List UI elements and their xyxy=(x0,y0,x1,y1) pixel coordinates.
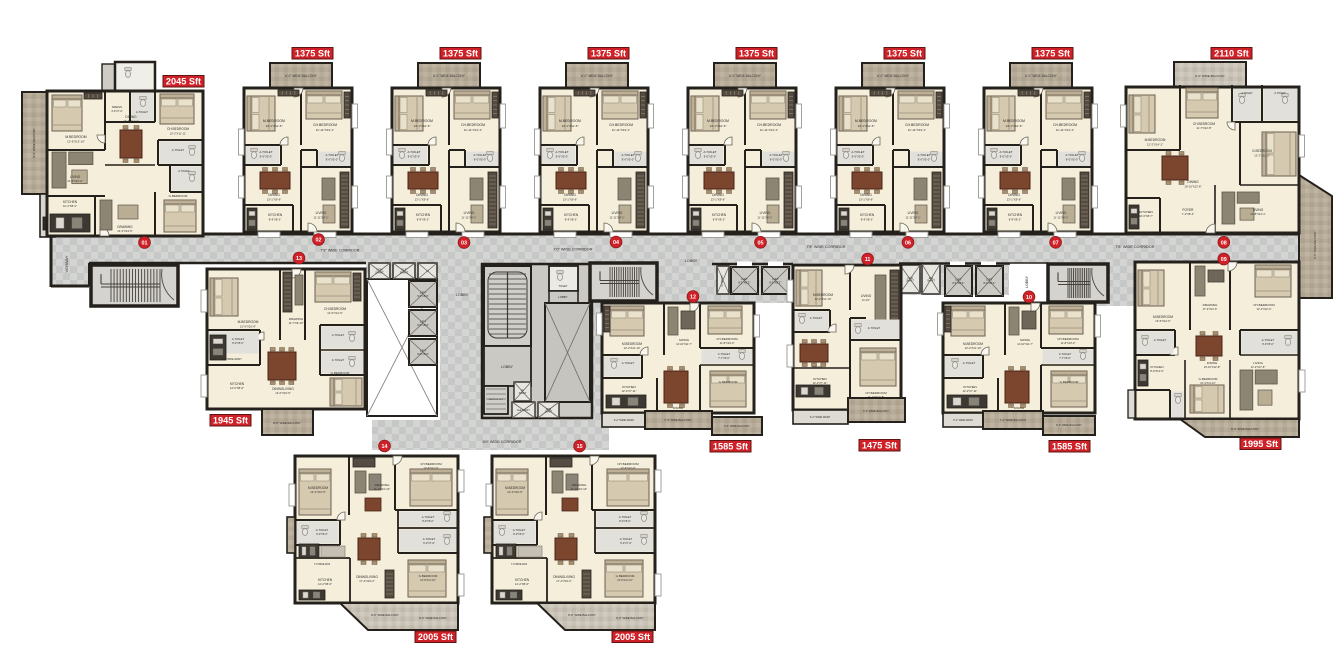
svg-text:7'-0"WIDE WAS: 7'-0"WIDE WAS xyxy=(314,563,331,566)
svg-text:8'-9"X8'-2": 8'-9"X8'-2" xyxy=(565,218,578,222)
svg-text:C.TOILET: C.TOILET xyxy=(718,352,731,356)
svg-text:KITCHEN: KITCHEN xyxy=(230,382,245,386)
svg-text:A.TOILET: A.TOILET xyxy=(332,333,345,337)
svg-text:6'4"x6'4": 6'4"x6'4" xyxy=(417,323,428,327)
svg-text:6'-0" WIDE BALCONY: 6'-0" WIDE BALCONY xyxy=(1025,74,1058,78)
svg-text:8'-0"X5'-0": 8'-0"X5'-0" xyxy=(852,155,865,159)
svg-text:11'-8"X10'-0": 11'-8"X10'-0" xyxy=(1061,341,1076,345)
svg-text:8'-6" WIDE BALCONY: 8'-6" WIDE BALCONY xyxy=(273,421,301,425)
svg-text:KITCHEN: KITCHEN xyxy=(318,578,333,582)
svg-text:LOBBY: LOBBY xyxy=(558,295,567,299)
svg-text:6'-0" WIDE BALCONY: 6'-0" WIDE BALCONY xyxy=(729,74,762,78)
svg-text:DINING: DINING xyxy=(1187,180,1199,184)
svg-text:6'1"X6'1": 6'1"X6'1" xyxy=(983,281,995,285)
svg-text:A.TOILET: A.TOILET xyxy=(917,153,930,157)
svg-text:17'-4"X19'-2": 17'-4"X19'-2" xyxy=(556,579,572,583)
svg-text:6'-0"X7'-6": 6'-0"X7'-6" xyxy=(620,542,632,545)
svg-text:G.BEDROOM: G.BEDROOM xyxy=(1060,380,1079,384)
svg-text:ELE SHAFT: ELE SHAFT xyxy=(517,409,530,412)
svg-text:DINING: DINING xyxy=(712,193,724,197)
svg-text:DRAWING: DRAWING xyxy=(289,317,304,321)
svg-text:M.BEDROOM: M.BEDROOM xyxy=(1003,119,1025,123)
svg-text:12'-2"X7'-11": 12'-2"X7'-11" xyxy=(963,389,978,393)
svg-text:8'-6" WIDE BALCONY: 8'-6" WIDE BALCONY xyxy=(371,613,399,617)
svg-text:DINING: DINING xyxy=(812,365,823,369)
svg-text:LIVING: LIVING xyxy=(70,175,81,179)
svg-text:LOBBY: LOBBY xyxy=(501,365,514,369)
svg-text:2005 Sft: 2005 Sft xyxy=(418,632,453,642)
svg-text:8'-0"X5'-0": 8'-0"X5'-0" xyxy=(316,533,328,536)
svg-text:KITCHEN: KITCHEN xyxy=(515,578,530,582)
svg-text:DINING: DINING xyxy=(564,193,576,197)
svg-text:M.BEDROOM: M.BEDROOM xyxy=(963,342,983,346)
svg-text:KITCHEN: KITCHEN xyxy=(416,213,431,217)
svg-text:8'-0"X5'-0": 8'-0"X5'-0" xyxy=(326,158,339,162)
svg-text:KITCHEN: KITCHEN xyxy=(860,213,875,217)
svg-text:CH.BEDROOM: CH.BEDROOM xyxy=(324,307,346,311)
svg-text:A.TOILET: A.TOILET xyxy=(136,110,148,114)
svg-text:8'-9"X8'-2": 8'-9"X8'-2" xyxy=(861,218,874,222)
svg-text:6'-0" WIDE BALCONY: 6'-0" WIDE BALCONY xyxy=(285,74,318,78)
svg-text:11: 11 xyxy=(865,257,871,263)
svg-text:13'-1"X9'-6": 13'-1"X9'-6" xyxy=(1007,198,1022,202)
svg-text:KITCHEN: KITCHEN xyxy=(564,213,579,217)
svg-text:A.TOILET: A.TOILET xyxy=(513,528,526,532)
svg-text:CH.BEDROOM: CH.BEDROOM xyxy=(461,123,485,127)
svg-text:8'-6" WIDE BALCONY: 8'-6" WIDE BALCONY xyxy=(568,613,596,617)
svg-text:11'-11"X13'-1": 11'-11"X13'-1" xyxy=(612,128,631,132)
svg-text:LIVING: LIVING xyxy=(908,211,919,215)
svg-text:8'-0"X5'-0": 8'-0"X5'-0" xyxy=(918,158,931,162)
svg-text:4'-0"X7'-0": 4'-0"X7'-0" xyxy=(111,110,123,113)
svg-text:2005 Sft: 2005 Sft xyxy=(615,632,650,642)
svg-text:12'-6"X12'-10": 12'-6"X12'-10" xyxy=(67,140,85,144)
svg-text:02: 02 xyxy=(316,238,322,244)
svg-text:SHAFT: SHAFT xyxy=(545,411,553,414)
svg-text:A.TOILET: A.TOILET xyxy=(703,150,716,154)
svg-text:12'-10"X11'-7": 12'-10"X11'-7" xyxy=(1017,343,1033,346)
svg-text:2045 Sft: 2045 Sft xyxy=(166,77,201,87)
svg-text:6'-2" WIDE WASH: 6'-2" WIDE WASH xyxy=(810,416,830,419)
svg-text:6'-6" WIDE BALCONY: 6'-6" WIDE BALCONY xyxy=(724,424,750,428)
svg-text:11'-11"X9'-1": 11'-11"X9'-1" xyxy=(757,216,772,220)
svg-text:05: 05 xyxy=(758,240,764,246)
svg-text:DRAWING: DRAWING xyxy=(572,483,587,487)
svg-text:17'-4"X11'-6": 17'-4"X11'-6" xyxy=(1203,307,1218,311)
svg-text:DRAWING: DRAWING xyxy=(1203,303,1218,307)
svg-text:DRAWING: DRAWING xyxy=(375,483,390,487)
svg-text:12'-2"X11'-10": 12'-2"X11'-10" xyxy=(624,346,641,350)
svg-text:CH.BEDROOM: CH.BEDROOM xyxy=(167,127,189,131)
svg-text:KITCHEN: KITCHEN xyxy=(63,200,78,204)
svg-text:A.TOILET: A.TOILET xyxy=(555,150,568,154)
svg-text:SHAFT: SHAFT xyxy=(375,271,384,275)
svg-text:8'-0"X5'-0": 8'-0"X5'-0" xyxy=(556,155,569,159)
svg-text:G.BEDROOM: G.BEDROOM xyxy=(169,194,188,198)
svg-text:EL SHAFT: EL SHAFT xyxy=(721,275,724,287)
svg-text:M.BEDROOM: M.BEDROOM xyxy=(238,320,259,324)
svg-text:A.TOILET: A.TOILET xyxy=(1154,338,1167,342)
svg-text:6'-0" WIDE BALCONY: 6'-0" WIDE BALCONY xyxy=(616,616,644,620)
svg-text:M.BEDROOM: M.BEDROOM xyxy=(65,135,86,139)
svg-text:CH.BEDROOM: CH.BEDROOM xyxy=(865,391,887,395)
svg-text:6'-2" WIDE WASH: 6'-2" WIDE WASH xyxy=(614,419,634,422)
svg-text:13: 13 xyxy=(296,256,302,262)
svg-text:LIVING: LIVING xyxy=(760,211,771,215)
svg-text:8'-0"X5'-0": 8'-0"X5'-0" xyxy=(422,520,434,523)
svg-text:12'-8"X14'-1": 12'-8"X14'-1" xyxy=(1250,212,1266,216)
svg-text:12'-6"X12'-6": 12'-6"X12'-6" xyxy=(327,311,343,315)
svg-text:13'-1"X9'-6": 13'-1"X9'-6" xyxy=(859,198,874,202)
svg-text:12'-6"X12'-0": 12'-6"X12'-0" xyxy=(621,466,636,470)
svg-text:CH.BEDROOM: CH.BEDROOM xyxy=(905,123,929,127)
svg-text:A.TOILET: A.TOILET xyxy=(1274,91,1286,95)
svg-text:CH.BEDROOM: CH.BEDROOM xyxy=(420,462,442,466)
svg-text:13'-1"X9'-6": 13'-1"X9'-6" xyxy=(563,198,578,202)
svg-text:KITCHEN: KITCHEN xyxy=(622,385,636,389)
svg-text:12'-6"X12'-0": 12'-6"X12'-0" xyxy=(424,466,439,470)
svg-text:VEHWAY: VEHWAY xyxy=(64,255,69,272)
svg-text:12'-2"X14'-1": 12'-2"X14'-1" xyxy=(1147,143,1163,147)
svg-text:8'-0"X5'-0": 8'-0"X5'-0" xyxy=(232,342,244,345)
svg-text:M.BEDROOM: M.BEDROOM xyxy=(813,293,833,297)
svg-text:1375 Sft: 1375 Sft xyxy=(443,49,478,59)
svg-text:06: 06 xyxy=(905,240,911,246)
svg-text:07: 07 xyxy=(1053,240,1059,246)
svg-text:13'-1"X9'-6": 13'-1"X9'-6" xyxy=(711,198,726,202)
svg-text:6'1"X6'1": 6'1"X6'1" xyxy=(952,281,964,285)
svg-text:8'-9"X12'-0": 8'-9"X12'-0" xyxy=(1150,369,1164,373)
svg-text:7'-4" WIDE BALCONY: 7'-4" WIDE BALCONY xyxy=(1000,418,1027,422)
svg-text:8'-0"X5'-0": 8'-0"X5'-0" xyxy=(619,520,631,523)
svg-text:DINING: DINING xyxy=(1014,406,1025,410)
svg-text:6'4"x6'4": 6'4"x6'4" xyxy=(417,352,428,356)
svg-text:13'-1"X11'-6": 13'-1"X11'-6" xyxy=(561,124,578,128)
svg-text:C.TOILET: C.TOILET xyxy=(1059,352,1072,356)
svg-text:8'-0"X5'-0": 8'-0"X5'-0" xyxy=(622,158,635,162)
svg-text:TOILET: TOILET xyxy=(558,284,567,288)
svg-text:COM: COM xyxy=(546,409,551,411)
svg-text:A.TOILET: A.TOILET xyxy=(259,150,272,154)
svg-text:A.TOILET: A.TOILET xyxy=(1241,91,1253,95)
svg-text:8'-0"X5'-0": 8'-0"X5'-0" xyxy=(513,533,525,536)
svg-text:1375 Sft: 1375 Sft xyxy=(295,49,330,59)
svg-text:DINING: DINING xyxy=(1207,361,1218,365)
svg-text:7'-0"WIDE WAS: 7'-0"WIDE WAS xyxy=(511,563,528,566)
svg-text:7'8" WIDE CORRIDOR: 7'8" WIDE CORRIDOR xyxy=(321,249,360,253)
svg-text:SWING: SWING xyxy=(1020,338,1031,342)
svg-text:6'-0" WIDE BALCONY: 6'-0" WIDE BALCONY xyxy=(1313,231,1317,259)
svg-text:12'-6"X8'-6": 12'-6"X8'-6" xyxy=(230,386,244,390)
svg-text:6'-0"X7'-6": 6'-0"X7'-6" xyxy=(423,542,435,545)
svg-text:CH.BEDROOM: CH.BEDROOM xyxy=(757,123,781,127)
svg-text:7'0" WIDE CORRIDOR: 7'0" WIDE CORRIDOR xyxy=(554,248,593,252)
svg-text:12'-6"X11'-10": 12'-6"X11'-10" xyxy=(617,579,633,582)
svg-text:12'-2"X12'-0": 12'-2"X12'-0" xyxy=(1257,307,1272,311)
svg-text:KITCHEN: KITCHEN xyxy=(1008,213,1023,217)
svg-text:M.BEDROOM: M.BEDROOM xyxy=(707,119,729,123)
svg-text:11'-11"X13'-1": 11'-11"X13'-1" xyxy=(908,128,927,132)
svg-text:17'-4"X19'-2": 17'-4"X19'-2" xyxy=(359,579,375,583)
svg-text:10'-2"X8'-2": 10'-2"X8'-2" xyxy=(63,204,77,208)
svg-text:13'-1"X9'-6": 13'-1"X9'-6" xyxy=(415,198,430,202)
svg-text:13'-1"X9'-6": 13'-1"X9'-6" xyxy=(267,198,282,202)
svg-text:DININGLIVING: DININGLIVING xyxy=(272,387,294,391)
svg-text:DINING: DINING xyxy=(673,406,684,410)
svg-text:8'-0"X5'-0": 8'-0"X5'-0" xyxy=(1262,343,1274,346)
svg-text:M.BEDROOM: M.BEDROOM xyxy=(1153,315,1173,319)
svg-text:8'-0"X5'-0": 8'-0"X5'-0" xyxy=(408,155,421,159)
svg-text:LIVING: LIVING xyxy=(1253,208,1264,212)
svg-text:A.TOILET: A.TOILET xyxy=(851,150,864,154)
svg-text:6'-0" WIDE BALCONY: 6'-0" WIDE BALCONY xyxy=(419,616,447,620)
svg-text:12'-2"X11'-10": 12'-2"X11'-10" xyxy=(815,297,832,301)
svg-text:M.BEDROOM: M.BEDROOM xyxy=(505,486,525,490)
svg-text:A.TOILET: A.TOILET xyxy=(963,361,976,365)
svg-text:13'-1"X11'-6": 13'-1"X11'-6" xyxy=(709,124,726,128)
svg-text:1375 Sft: 1375 Sft xyxy=(739,49,774,59)
svg-text:7'-7"X6'-0": 7'-7"X6'-0" xyxy=(1059,357,1071,360)
svg-text:11'-7"X9'-10": 11'-7"X9'-10" xyxy=(289,321,304,325)
svg-text:13'-1"X11'-6": 13'-1"X11'-6" xyxy=(265,124,282,128)
svg-text:7'8" WIDE CORRIDOR: 7'8" WIDE CORRIDOR xyxy=(807,245,846,249)
svg-text:8'-9"X8'-2": 8'-9"X8'-2" xyxy=(269,218,282,222)
svg-text:13'-5"X12'-0": 13'-5"X12'-0" xyxy=(1155,319,1171,323)
svg-text:11'-11"X9'-1": 11'-11"X9'-1" xyxy=(609,216,624,220)
svg-text:6'-0" WIDE BALCONY: 6'-0" WIDE BALCONY xyxy=(433,74,466,78)
svg-text:6'-2" WIDE WASH: 6'-2" WIDE WASH xyxy=(953,419,973,422)
svg-text:LOBBY: LOBBY xyxy=(685,259,698,263)
svg-text:A.TOILET: A.TOILET xyxy=(172,148,185,152)
svg-text:A.TOILET: A.TOILET xyxy=(332,358,345,362)
svg-text:7'8" WIDE CORRIDOR: 7'8" WIDE CORRIDOR xyxy=(1116,245,1155,249)
svg-text:DINING: DINING xyxy=(860,193,872,197)
svg-text:A.TOILET: A.TOILET xyxy=(619,515,632,519)
svg-text:8'-0"X5'-0": 8'-0"X5'-0" xyxy=(1000,155,1013,159)
svg-text:12'-0"X16'-9": 12'-0"X16'-9" xyxy=(275,391,291,395)
svg-text:A.TOILET: A.TOILET xyxy=(620,537,633,541)
svg-text:CH.BEDROOM: CH.BEDROOM xyxy=(313,123,337,127)
svg-text:CH.BEDROOM: CH.BEDROOM xyxy=(617,462,639,466)
svg-text:13'-1"X11'-6": 13'-1"X11'-6" xyxy=(1005,124,1022,128)
svg-text:LOBBY: LOBBY xyxy=(456,293,469,297)
svg-text:A.TOILET: A.TOILET xyxy=(325,153,338,157)
svg-text:M.BEDROOM: M.BEDROOM xyxy=(411,119,433,123)
svg-text:G.BEDROOM: G.BEDROOM xyxy=(419,574,438,578)
svg-text:8'-0" WIDE BALCONY: 8'-0" WIDE BALCONY xyxy=(32,128,36,158)
svg-text:16'-10"X12'-8": 16'-10"X12'-8" xyxy=(1204,365,1220,369)
svg-text:DINING: DINING xyxy=(125,115,137,119)
svg-text:G.BEDROOM: G.BEDROOM xyxy=(1199,377,1218,381)
svg-text:A.TOILET: A.TOILET xyxy=(999,150,1012,154)
svg-text:A.TOILET: A.TOILET xyxy=(868,326,881,330)
svg-text:6'-0" WIDE BALCONY: 6'-0" WIDE BALCONY xyxy=(1195,74,1225,78)
svg-text:6'-0" WIDE BALCONY: 6'-0" WIDE BALCONY xyxy=(581,74,614,78)
svg-text:CH.BEDROOM: CH.BEDROOM xyxy=(1193,122,1215,126)
svg-text:A.TOILET: A.TOILET xyxy=(810,316,823,320)
svg-text:10'-6"X12'-2": 10'-6"X12'-2" xyxy=(67,179,83,183)
svg-text:1475 Sft: 1475 Sft xyxy=(862,441,897,451)
svg-text:M.BEDROOM: M.BEDROOM xyxy=(559,119,581,123)
svg-text:DINING: DINING xyxy=(268,193,280,197)
svg-text:1375 Sft: 1375 Sft xyxy=(591,49,626,59)
svg-text:1585 Sft: 1585 Sft xyxy=(713,442,748,452)
svg-text:11'-11"X13'-1": 11'-11"X13'-1" xyxy=(1056,128,1075,132)
svg-text:A.TOILET: A.TOILET xyxy=(621,153,634,157)
svg-text:SWING: SWING xyxy=(679,338,690,342)
svg-text:1945 Sft: 1945 Sft xyxy=(213,416,248,426)
svg-text:08: 08 xyxy=(1221,240,1227,246)
svg-text:6'-0" WIDE BALCONY: 6'-0" WIDE BALCONY xyxy=(863,409,889,413)
svg-text:8'-9"X8'-2": 8'-9"X8'-2" xyxy=(1009,218,1022,222)
svg-text:A.TOILET: A.TOILET xyxy=(422,515,435,519)
svg-text:12: 12 xyxy=(690,295,696,301)
svg-text:CH.BEDROOM: CH.BEDROOM xyxy=(1053,123,1077,127)
svg-text:8'-9"X8'-2": 8'-9"X8'-2" xyxy=(417,218,430,222)
svg-text:M.BEDROOM: M.BEDROOM xyxy=(1145,138,1166,142)
svg-text:7'-4" WIDE BALCONY: 7'-4" WIDE BALCONY xyxy=(664,418,692,422)
svg-text:DININGLIVING: DININGLIVING xyxy=(553,575,575,579)
svg-text:DINING: DINING xyxy=(416,193,428,197)
svg-text:1375 Sft: 1375 Sft xyxy=(887,49,922,59)
svg-text:12'-2"X10'-5": 12'-2"X10'-5" xyxy=(507,490,523,494)
svg-text:A.TOILET: A.TOILET xyxy=(1065,153,1078,157)
svg-text:SERVICE LIFT: SERVICE LIFT xyxy=(489,399,504,401)
svg-text:11'-11"X13'-1": 11'-11"X13'-1" xyxy=(464,128,483,132)
svg-text:CH.BEDROOM: CH.BEDROOM xyxy=(1057,337,1079,341)
svg-text:8'-0" WIDE BALCONY: 8'-0" WIDE BALCONY xyxy=(1231,427,1259,431)
svg-text:G.BEDROOM: G.BEDROOM xyxy=(616,574,635,578)
svg-text:13'-4"X13'-5": 13'-4"X13'-5" xyxy=(117,229,133,233)
svg-text:DINING: DINING xyxy=(1008,193,1020,197)
svg-text:A.TOILET: A.TOILET xyxy=(769,153,782,157)
svg-text:DRAWING: DRAWING xyxy=(117,225,133,229)
svg-text:LOBBY: LOBBY xyxy=(1025,275,1029,288)
svg-text:KITCHEN: KITCHEN xyxy=(268,213,283,217)
svg-text:A.TOILET: A.TOILET xyxy=(473,153,486,157)
svg-text:11'-11"X13'-1": 11'-11"X13'-1" xyxy=(316,128,335,132)
svg-text:7'-1"X8'-4": 7'-1"X8'-4" xyxy=(1182,212,1195,216)
svg-text:A.TOILET: A.TOILET xyxy=(423,537,436,541)
svg-text:SHAFT: SHAFT xyxy=(519,392,527,395)
svg-text:LIVING: LIVING xyxy=(612,211,623,215)
svg-text:8'-9"X8'-2": 8'-9"X8'-2" xyxy=(713,218,726,222)
svg-text:6'1"X6'1": 6'1"X6'1" xyxy=(738,280,750,284)
svg-text:KITCHEN: KITCHEN xyxy=(963,385,977,389)
svg-text:SHAFT: SHAFT xyxy=(400,271,409,275)
svg-text:10'-4"X11'-10": 10'-4"X11'-10" xyxy=(1200,382,1216,385)
svg-text:15: 15 xyxy=(577,444,583,450)
svg-text:A.TOILET: A.TOILET xyxy=(407,150,420,154)
svg-text:KITCHEN: KITCHEN xyxy=(813,377,827,381)
svg-text:LIVING: LIVING xyxy=(316,211,327,215)
svg-text:G.BEDROOM: G.BEDROOM xyxy=(719,380,738,384)
svg-text:SHAFT: SHAFT xyxy=(906,280,914,283)
svg-text:6'1"X6'1": 6'1"X6'1" xyxy=(769,280,781,284)
svg-text:12'-2"X10'-5": 12'-2"X10'-5" xyxy=(310,490,326,494)
svg-text:A.TOILET: A.TOILET xyxy=(622,361,635,365)
svg-text:12'-2"X8'-6": 12'-2"X8'-6" xyxy=(318,582,332,586)
svg-text:M.BEDROOM: M.BEDROOM xyxy=(855,119,877,123)
svg-text:6'-0" WIDE BALCONY: 6'-0" WIDE BALCONY xyxy=(877,74,910,78)
svg-text:11'-4"X16'-10": 11'-4"X16'-10" xyxy=(374,487,390,491)
svg-text:6'4"x6'4": 6'4"x6'4" xyxy=(417,294,428,298)
svg-text:G.BEDROOM: G.BEDROOM xyxy=(331,371,350,375)
svg-text:8'-0"X5'-0": 8'-0"X5'-0" xyxy=(770,158,783,162)
svg-text:09: 09 xyxy=(1221,257,1227,263)
svg-text:M.BEDROOM: M.BEDROOM xyxy=(308,486,328,490)
svg-text:LIVING: LIVING xyxy=(1056,211,1067,215)
svg-text:8'-0"X5'-0": 8'-0"X5'-0" xyxy=(474,158,487,162)
svg-text:10'-2"X11'-11": 10'-2"X11'-11" xyxy=(170,132,187,136)
svg-text:M.BEDROOM: M.BEDROOM xyxy=(622,342,642,346)
svg-text:13'-4"X14'-1": 13'-4"X14'-1" xyxy=(123,119,139,123)
svg-text:11'-11"X9'-1": 11'-11"X9'-1" xyxy=(905,216,920,220)
svg-text:03: 03 xyxy=(461,241,467,247)
svg-text:11'-10": 11'-10" xyxy=(862,298,870,302)
svg-text:12'-10"X11'-7": 12'-10"X11'-7" xyxy=(676,343,692,346)
svg-text:1995 Sft: 1995 Sft xyxy=(1243,439,1278,449)
svg-text:CH.BEDROOM: CH.BEDROOM xyxy=(716,337,738,341)
svg-text:6'-2"WIDE WASH: 6'-2"WIDE WASH xyxy=(223,358,242,361)
svg-text:12'-2"X7'-11": 12'-2"X7'-11" xyxy=(813,381,828,385)
svg-text:CH.BEDROOM: CH.BEDROOM xyxy=(609,123,633,127)
svg-text:11'-11"X9'-1": 11'-11"X9'-1" xyxy=(1053,216,1068,220)
svg-text:A.TOILET: A.TOILET xyxy=(316,528,329,532)
svg-text:DRESS: DRESS xyxy=(112,105,122,109)
svg-text:11'-11"X9'-1": 11'-11"X9'-1" xyxy=(313,216,328,220)
svg-text:FOYER: FOYER xyxy=(1183,208,1195,212)
svg-text:10: 10 xyxy=(1026,295,1032,301)
svg-text:SHAFT: SHAFT xyxy=(927,280,935,283)
svg-text:KITCHEN: KITCHEN xyxy=(712,213,727,217)
svg-text:13'-1"X11'-6": 13'-1"X11'-6" xyxy=(413,124,430,128)
svg-text:12'-2"X11'-10": 12'-2"X11'-10" xyxy=(965,346,982,350)
svg-text:8'-0"X5'-0": 8'-0"X5'-0" xyxy=(260,155,273,159)
svg-text:12'-2"X12'-1": 12'-2"X12'-1" xyxy=(1254,154,1270,158)
svg-text:16'-10"X12'-8": 16'-10"X12'-8" xyxy=(1185,185,1202,189)
svg-text:CH.BEDROOM: CH.BEDROOM xyxy=(1253,303,1275,307)
svg-text:11'-7"X12'-8": 11'-7"X12'-8" xyxy=(1196,126,1211,130)
svg-text:12'-2"X17'-8": 12'-2"X17'-8" xyxy=(1251,366,1266,369)
svg-text:11'-8"X10'-0": 11'-8"X10'-0" xyxy=(720,341,735,345)
svg-text:04: 04 xyxy=(613,240,619,246)
svg-text:LIVING: LIVING xyxy=(1253,361,1264,365)
svg-text:DININGLIVING: DININGLIVING xyxy=(356,575,378,579)
svg-text:12'-6"X11'-10": 12'-6"X11'-10" xyxy=(420,579,436,582)
svg-text:01: 01 xyxy=(142,241,148,247)
svg-text:M.BEDROOM: M.BEDROOM xyxy=(263,119,285,123)
svg-text:LIVING: LIVING xyxy=(861,294,872,298)
svg-text:1585 Sft: 1585 Sft xyxy=(1052,442,1087,452)
svg-text:13'-1"X11'-6": 13'-1"X11'-6" xyxy=(857,124,874,128)
svg-text:A.TOILET: A.TOILET xyxy=(1262,338,1275,342)
svg-text:2110 Sft: 2110 Sft xyxy=(1214,49,1249,59)
svg-text:8'0" WIDE CORRIDOR: 8'0" WIDE CORRIDOR xyxy=(483,440,522,444)
svg-text:KITCHEN: KITCHEN xyxy=(1150,365,1163,369)
svg-text:12'-2"X8'-6": 12'-2"X8'-6" xyxy=(515,582,529,586)
svg-text:11'-11"X9'-1": 11'-11"X9'-1" xyxy=(461,216,476,220)
svg-text:A.TOILET: A.TOILET xyxy=(178,169,190,173)
svg-text:14: 14 xyxy=(382,444,388,450)
svg-text:G.BEDROOM: G.BEDROOM xyxy=(1252,149,1272,153)
svg-text:A.TOILET: A.TOILET xyxy=(232,337,245,341)
svg-text:6'-6" WIDE BALCONY: 6'-6" WIDE BALCONY xyxy=(1056,423,1082,427)
svg-text:12'-6"X10'-6": 12'-6"X10'-6" xyxy=(240,325,256,329)
svg-text:11'-4"X16'-10": 11'-4"X16'-10" xyxy=(571,487,587,491)
svg-text:LIVING: LIVING xyxy=(464,211,475,215)
svg-text:10'-6"X8'-7": 10'-6"X8'-7" xyxy=(1139,214,1153,218)
